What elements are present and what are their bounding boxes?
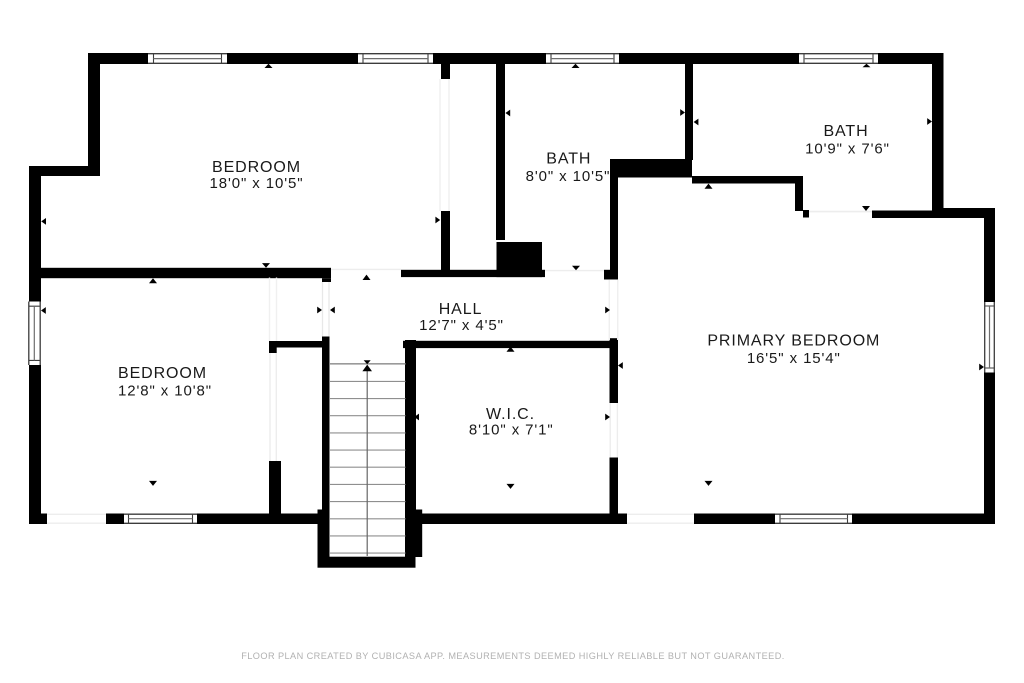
svg-text:PRIMARY BEDROOM: PRIMARY BEDROOM [707, 333, 880, 350]
svg-text:HALL: HALL [439, 301, 483, 318]
svg-text:W.I.C.: W.I.C. [486, 406, 535, 423]
svg-text:8'0" x 10'5": 8'0" x 10'5" [526, 168, 611, 185]
svg-text:16'5" x 15'4": 16'5" x 15'4" [747, 350, 841, 367]
svg-text:10'9" x 7'6": 10'9" x 7'6" [805, 140, 890, 157]
svg-text:12'7" x 4'5": 12'7" x 4'5" [419, 317, 504, 334]
svg-text:12'8" x 10'8": 12'8" x 10'8" [118, 383, 212, 400]
svg-text:BATH: BATH [823, 123, 868, 140]
svg-text:BATH: BATH [546, 151, 591, 168]
svg-text:8'10" x 7'1": 8'10" x 7'1" [469, 422, 554, 439]
svg-text:18'0" x 10'5": 18'0" x 10'5" [210, 175, 304, 192]
svg-text:BEDROOM: BEDROOM [212, 159, 301, 176]
svg-text:FLOOR PLAN CREATED BY CUBICASA: FLOOR PLAN CREATED BY CUBICASA APP. MEAS… [241, 651, 785, 661]
svg-text:BEDROOM: BEDROOM [118, 365, 207, 382]
